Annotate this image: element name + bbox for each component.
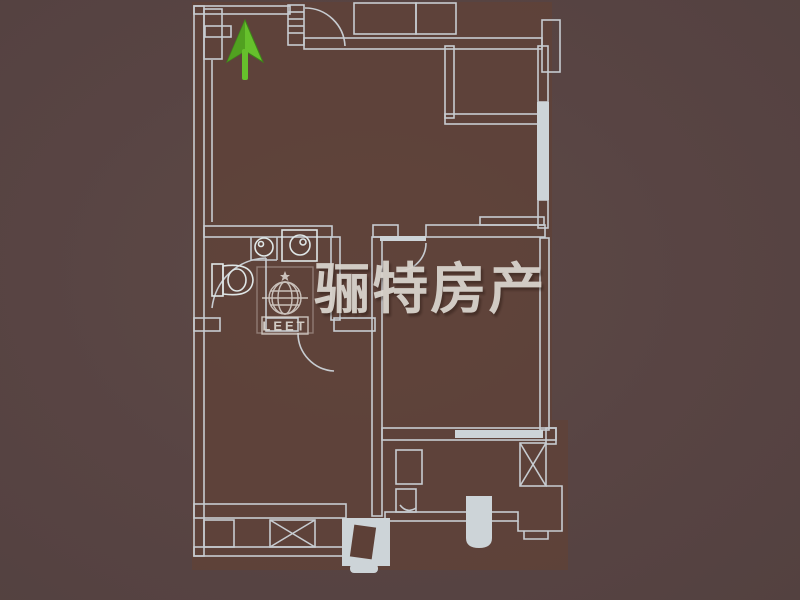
balcony-wall-solid — [455, 430, 543, 438]
watermark-logo: LEET — [248, 260, 318, 340]
right-window-solid — [537, 102, 549, 200]
photo-canvas: LEET 骊特房产 — [0, 0, 800, 600]
globe-icon — [262, 282, 308, 314]
pier-solid — [466, 496, 492, 548]
balcony-door-leaf — [350, 525, 376, 560]
brand-text: 骊特房产 — [314, 262, 547, 317]
room-door-leaf — [380, 236, 426, 241]
leet-label: LEET — [262, 319, 307, 334]
star-icon — [280, 271, 290, 281]
watermark: LEET 骊特房产 — [248, 260, 578, 340]
